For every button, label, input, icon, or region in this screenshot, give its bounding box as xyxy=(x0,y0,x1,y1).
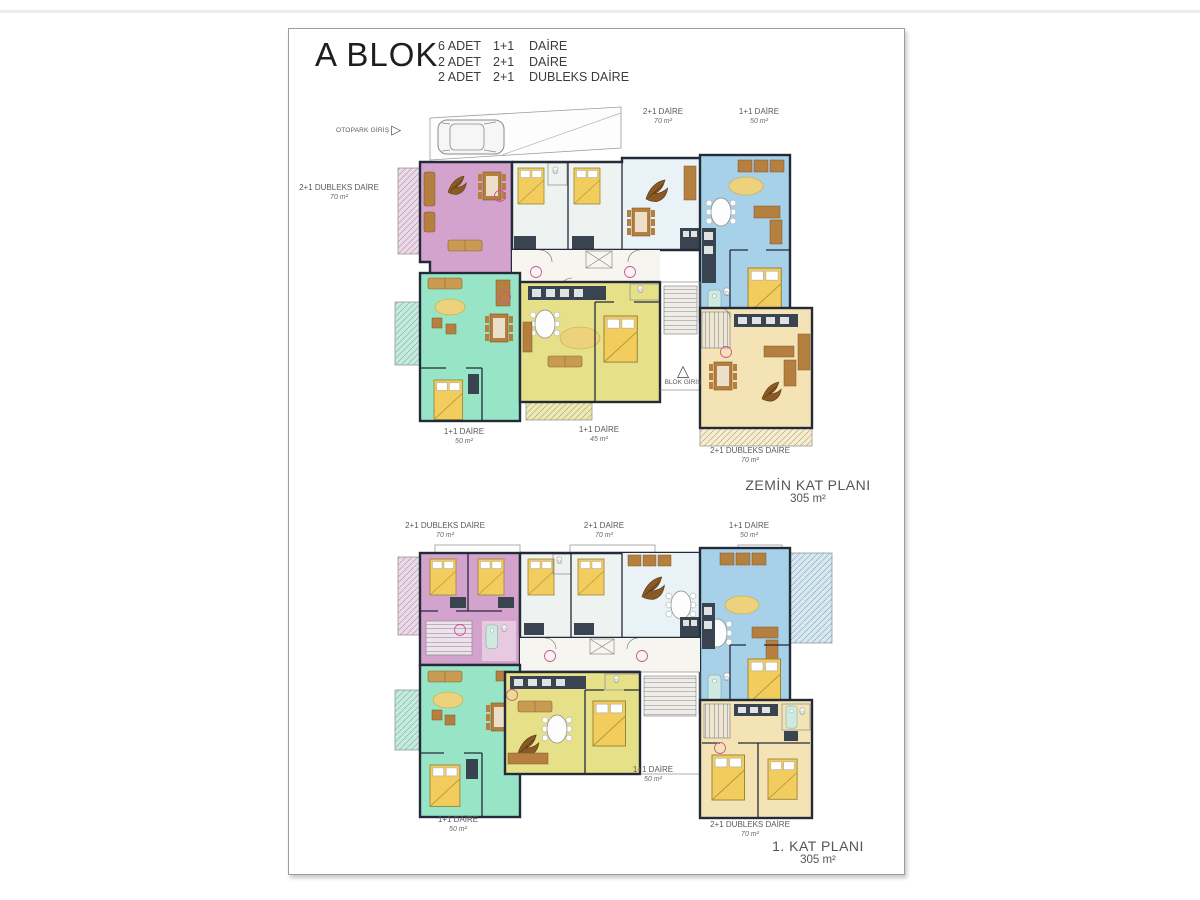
unit-1plus1-yellow-upper xyxy=(505,672,640,774)
unit-label-f1-bottom-1plus1: 1+1 DAİRE 50 m² xyxy=(412,815,504,834)
ground-floor-plan-drawing xyxy=(390,100,835,460)
summary-layout: 2+1 xyxy=(493,55,529,71)
summary-count: 2 ADET xyxy=(438,70,493,86)
unit-label-f1-mid-1plus1: 1+1 DAİRE 50 m² xyxy=(607,765,699,784)
summary-layout: 1+1 xyxy=(493,39,529,55)
unit-label-f1-top-dubleks: 2+1 DUBLEKS DAİRE 70 m² xyxy=(385,521,505,540)
unit-label-f1-top-1plus1: 1+1 DAİRE 50 m² xyxy=(703,521,795,540)
unit-label-left-dubleks: 2+1 DUBLEKS DAİRE 70 m² xyxy=(283,183,395,202)
otopark-giris-label: OTOPARK GİRİŞ ▷ xyxy=(336,125,402,135)
first-floor-plan-title: 1. KAT PLANI 305 m² xyxy=(748,838,888,866)
block-title: A BLOK xyxy=(315,36,438,74)
scan-edge-band xyxy=(0,10,1200,13)
unit-summary: 6 ADET 1+1 DAİRE 2 ADET 2+1 DAİRE 2 ADET… xyxy=(438,39,629,86)
unit-label-f1-top-2plus1: 2+1 DAİRE 70 m² xyxy=(558,521,650,540)
summary-kind: DAİRE xyxy=(529,39,567,55)
summary-kind: DUBLEKS DAİRE xyxy=(529,70,629,86)
floorplan-sheet: A BLOK 6 ADET 1+1 DAİRE 2 ADET 2+1 DAİRE… xyxy=(0,0,1200,900)
otopark-giris-text: OTOPARK GİRİŞ xyxy=(336,127,389,134)
unit-label-top-2plus1: 2+1 DAİRE 70 m² xyxy=(617,107,709,126)
unit-label-bottom-1plus1-b: 1+1 DAİRE 45 m² xyxy=(553,425,645,444)
ground-floor-plan-title: ZEMİN KAT PLANI 305 m² xyxy=(728,477,888,505)
summary-kind: DAİRE xyxy=(529,55,567,71)
stairs xyxy=(704,704,730,738)
unit-label-f1-bottom-dubleks: 2+1 DUBLEKS DAİRE 70 m² xyxy=(688,820,812,839)
unit-dubleks-pink-upper xyxy=(398,553,520,665)
summary-count: 2 ADET xyxy=(438,55,493,71)
unit-1plus1-blue xyxy=(700,155,790,322)
unit-1plus1-green-upper xyxy=(395,665,520,817)
garage-ramp xyxy=(430,107,621,160)
unit-2plus1-bedrooms xyxy=(512,162,622,250)
summary-row: 6 ADET 1+1 DAİRE xyxy=(438,39,629,55)
stair-core-upper xyxy=(640,672,700,774)
unit-label-bottom-1plus1-a: 1+1 DAİRE 50 m² xyxy=(418,427,510,446)
blok-giris-label: △ BLOK GİRİŞ xyxy=(648,364,718,386)
unit-dubleks-tan-upper xyxy=(700,700,812,818)
stairs xyxy=(664,286,697,334)
unit-label-bottom-dubleks: 2+1 DUBLEKS DAİRE 70 m² xyxy=(688,446,812,465)
unit-1plus1-green xyxy=(395,273,520,421)
arrow-right-icon: ▷ xyxy=(391,125,401,135)
first-floor-plan-drawing xyxy=(390,543,835,833)
unit-1plus1-yellow xyxy=(520,282,660,420)
summary-row: 2 ADET 2+1 DUBLEKS DAİRE xyxy=(438,70,629,86)
corridor-upper xyxy=(520,638,700,672)
stairs xyxy=(702,312,730,348)
unit-label-top-1plus1: 1+1 DAİRE 50 m² xyxy=(713,107,805,126)
car-icon xyxy=(438,120,504,154)
summary-count: 6 ADET xyxy=(438,39,493,55)
triangle-north-icon: △ xyxy=(648,364,718,379)
stairs xyxy=(426,621,472,655)
stairs xyxy=(644,676,696,716)
summary-layout: 2+1 xyxy=(493,70,529,86)
unit-1plus1-blue-upper xyxy=(700,548,832,713)
summary-row: 2 ADET 2+1 DAİRE xyxy=(438,55,629,71)
